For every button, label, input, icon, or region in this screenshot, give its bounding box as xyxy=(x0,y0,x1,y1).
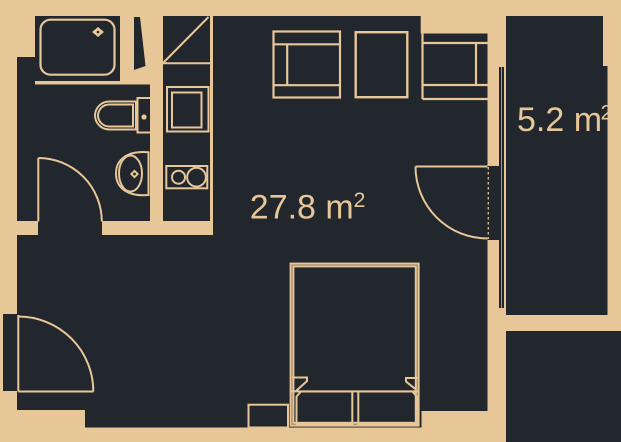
svg-text:5.2 m: 5.2 m xyxy=(517,101,602,139)
svg-text:27.8 m: 27.8 m xyxy=(250,189,354,227)
svg-text:2: 2 xyxy=(601,100,613,124)
svg-text:2: 2 xyxy=(354,188,366,212)
